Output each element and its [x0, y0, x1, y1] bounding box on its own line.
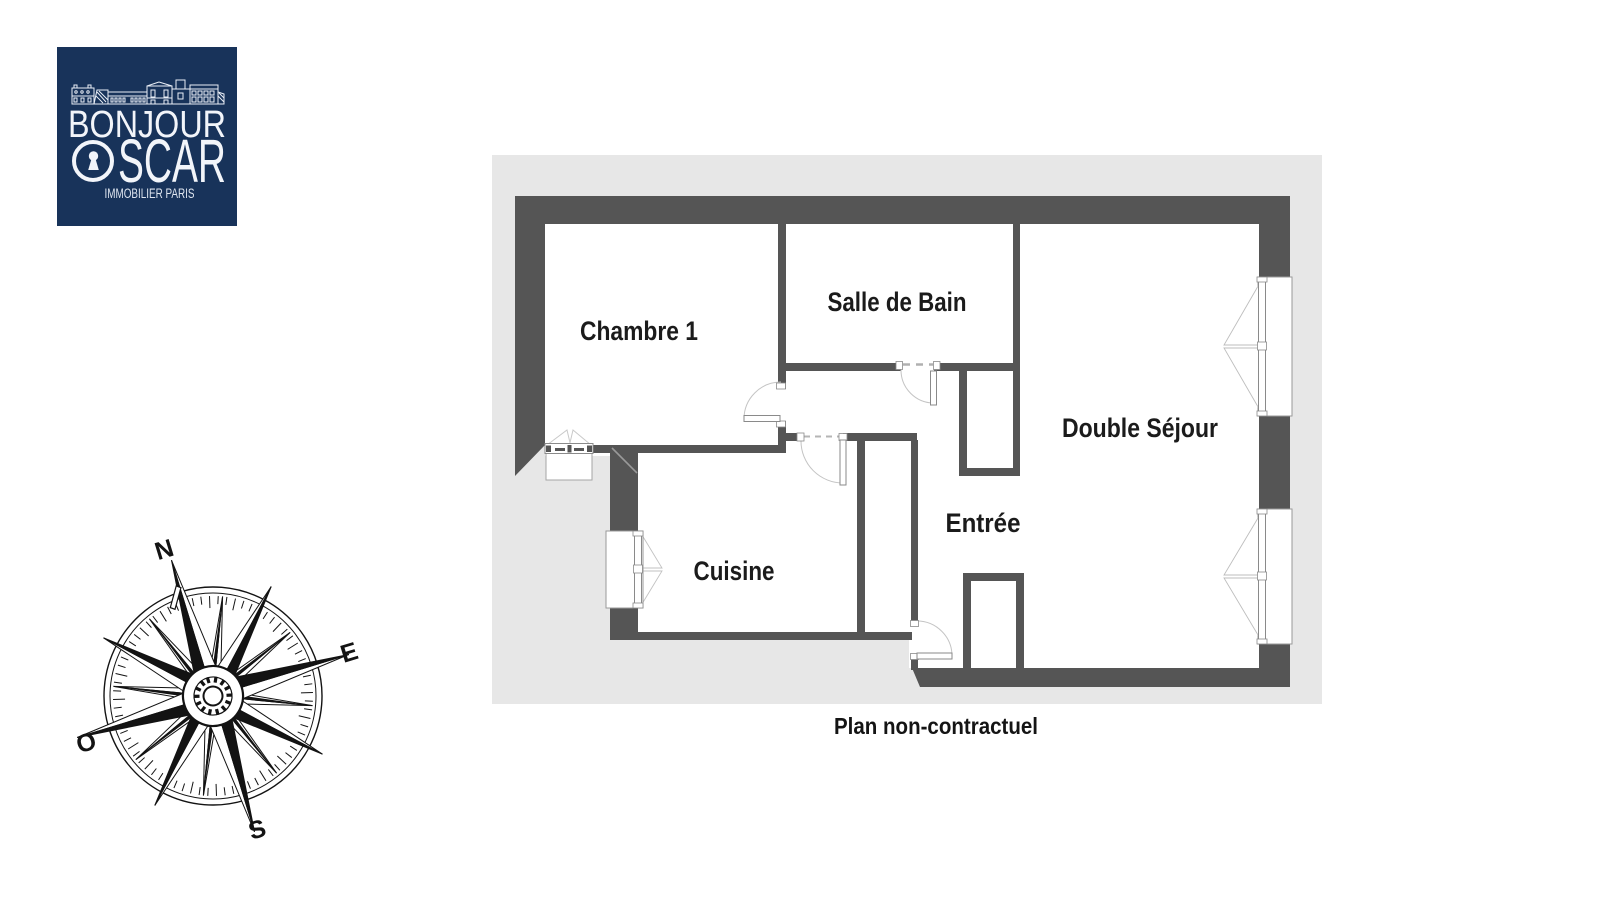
svg-text:Entrée: Entrée — [946, 508, 1021, 538]
svg-text:Cuisine: Cuisine — [694, 556, 775, 586]
svg-text:N: N — [152, 534, 177, 566]
svg-text:Plan non-contractuel: Plan non-contractuel — [834, 713, 1038, 739]
svg-text:Salle de Bain: Salle de Bain — [828, 287, 967, 317]
svg-text:Chambre 1: Chambre 1 — [580, 316, 698, 346]
svg-text:S: S — [245, 814, 269, 846]
svg-text:SCAR: SCAR — [118, 127, 226, 195]
svg-text:IMMOBILIER PARIS: IMMOBILIER PARIS — [105, 186, 195, 201]
svg-text:E: E — [337, 637, 361, 669]
svg-text:Double Séjour: Double Séjour — [1062, 413, 1218, 443]
